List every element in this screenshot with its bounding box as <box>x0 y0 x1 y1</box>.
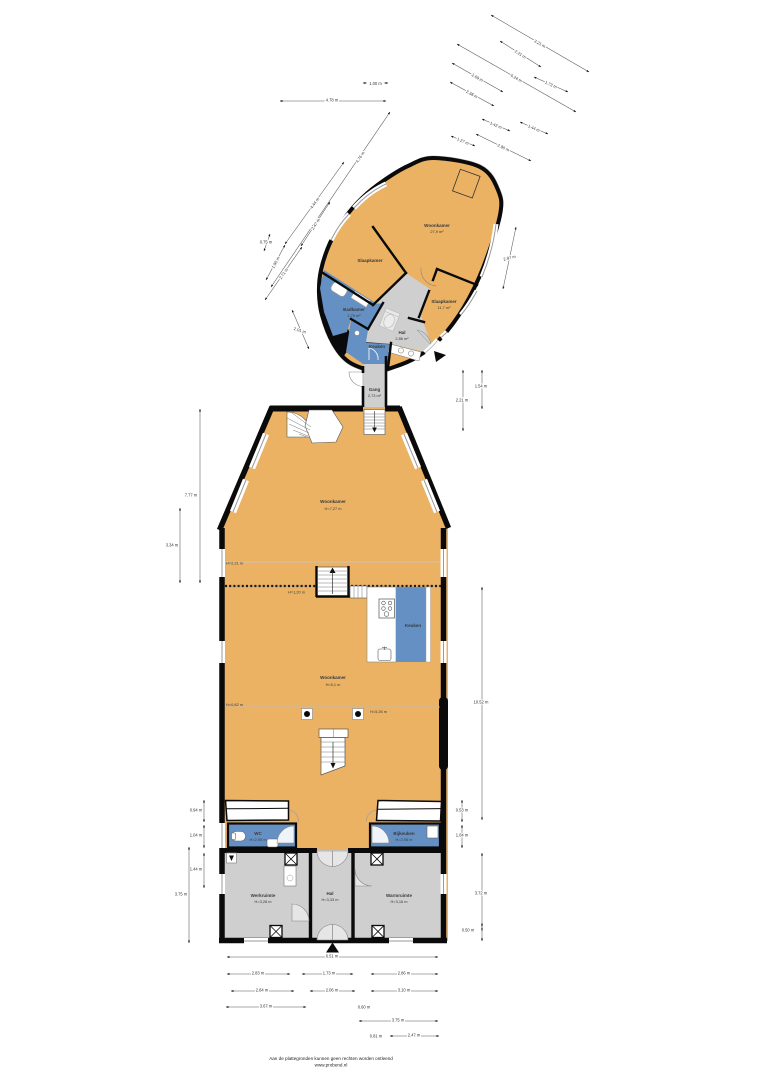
svg-text:Woonkamer: Woonkamer <box>320 675 346 680</box>
svg-text:11,7 m²: 11,7 m² <box>438 305 452 310</box>
svg-text:Bijkeuken: Bijkeuken <box>393 831 415 836</box>
svg-text:H=2,05 m: H=2,05 m <box>250 837 267 842</box>
svg-text:2,86 m²: 2,86 m² <box>395 336 409 341</box>
svg-text:3.75 m: 3.75 m <box>175 892 188 897</box>
svg-text:www.probend.nl: www.probend.nl <box>315 1063 348 1068</box>
svg-text:7.77 m: 7.77 m <box>185 493 198 498</box>
svg-text:3.72 m: 3.72 m <box>475 891 488 896</box>
svg-text:1.04 m: 1.04 m <box>190 833 203 838</box>
svg-text:Warmruimte: Warmruimte <box>386 893 413 898</box>
svg-text:4.78 m: 4.78 m <box>326 98 339 103</box>
svg-text:H=3,16 m: H=3,16 m <box>391 899 408 904</box>
svg-text:2.21 m: 2.21 m <box>456 398 469 403</box>
svg-text:Hal: Hal <box>398 330 405 335</box>
svg-text:1.00 m: 1.00 m <box>369 81 382 86</box>
svg-text:0.50 m: 0.50 m <box>462 928 475 933</box>
svg-text:Badkamer: Badkamer <box>343 307 365 312</box>
svg-text:Keuken: Keuken <box>405 623 422 628</box>
svg-text:H=7,27 m: H=7,27 m <box>325 506 342 511</box>
svg-text:Slaapkamer: Slaapkamer <box>431 299 457 304</box>
svg-text:Woonkamer: Woonkamer <box>320 499 346 504</box>
svg-text:0.60 m: 0.60 m <box>358 1005 371 1010</box>
svg-text:H=2,21 m: H=2,21 m <box>226 561 243 566</box>
svg-text:0.53 m: 0.53 m <box>456 808 469 813</box>
svg-text:0.94 m: 0.94 m <box>190 808 203 813</box>
svg-text:3.75 m: 3.75 m <box>392 1018 405 1023</box>
svg-text:Woonkamer: Woonkamer <box>424 223 450 228</box>
svg-text:3.34 m: 3.34 m <box>166 543 179 548</box>
svg-text:0.75 m: 0.75 m <box>260 240 273 245</box>
svg-text:0.81 m: 0.81 m <box>370 1034 383 1039</box>
svg-text:H=3,33 m: H=3,33 m <box>322 897 339 902</box>
svg-text:1.44 m: 1.44 m <box>190 867 203 872</box>
svg-text:WC: WC <box>254 831 262 836</box>
svg-text:1.04 m: 1.04 m <box>456 833 469 838</box>
svg-text:3.67 m: 3.67 m <box>260 1004 273 1009</box>
svg-text:2,79 m²: 2,79 m² <box>347 313 361 318</box>
svg-text:27,9 m²: 27,9 m² <box>430 229 444 234</box>
svg-text:H=0,82 m: H=0,82 m <box>226 702 243 707</box>
svg-text:H=3,28 m: H=3,28 m <box>255 899 272 904</box>
svg-text:6.51 m: 6.51 m <box>326 954 339 959</box>
svg-text:2,73 m²: 2,73 m² <box>368 393 382 398</box>
svg-text:H=2,06 m: H=2,06 m <box>396 837 413 842</box>
svg-text:1.73 m: 1.73 m <box>323 971 336 976</box>
svg-text:2.84 m: 2.84 m <box>256 988 269 993</box>
svg-text:H=5,26 m: H=5,26 m <box>370 709 387 714</box>
svg-text:1.54 m: 1.54 m <box>475 384 488 389</box>
svg-text:10.52 m: 10.52 m <box>474 700 489 705</box>
svg-text:2.86 m: 2.86 m <box>398 971 411 976</box>
svg-text:2.06 m: 2.06 m <box>326 988 339 993</box>
svg-text:Werkruimte: Werkruimte <box>251 893 276 898</box>
svg-text:3.10 m: 3.10 m <box>398 988 411 993</box>
svg-text:Hal: Hal <box>326 891 333 896</box>
svg-text:H=5,1 m: H=5,1 m <box>326 682 341 687</box>
svg-text:Slaapkamer: Slaapkamer <box>357 258 383 263</box>
svg-text:Aan de plattegronden kunnen ge: Aan de plattegronden kunnen geen rechten… <box>269 1056 393 1061</box>
svg-text:2.83 m: 2.83 m <box>252 971 265 976</box>
svg-text:H=1,20 m: H=1,20 m <box>288 590 305 595</box>
svg-text:Gang: Gang <box>369 387 381 392</box>
svg-text:Keuken: Keuken <box>369 344 386 349</box>
svg-text:2.47 m: 2.47 m <box>408 1033 421 1038</box>
